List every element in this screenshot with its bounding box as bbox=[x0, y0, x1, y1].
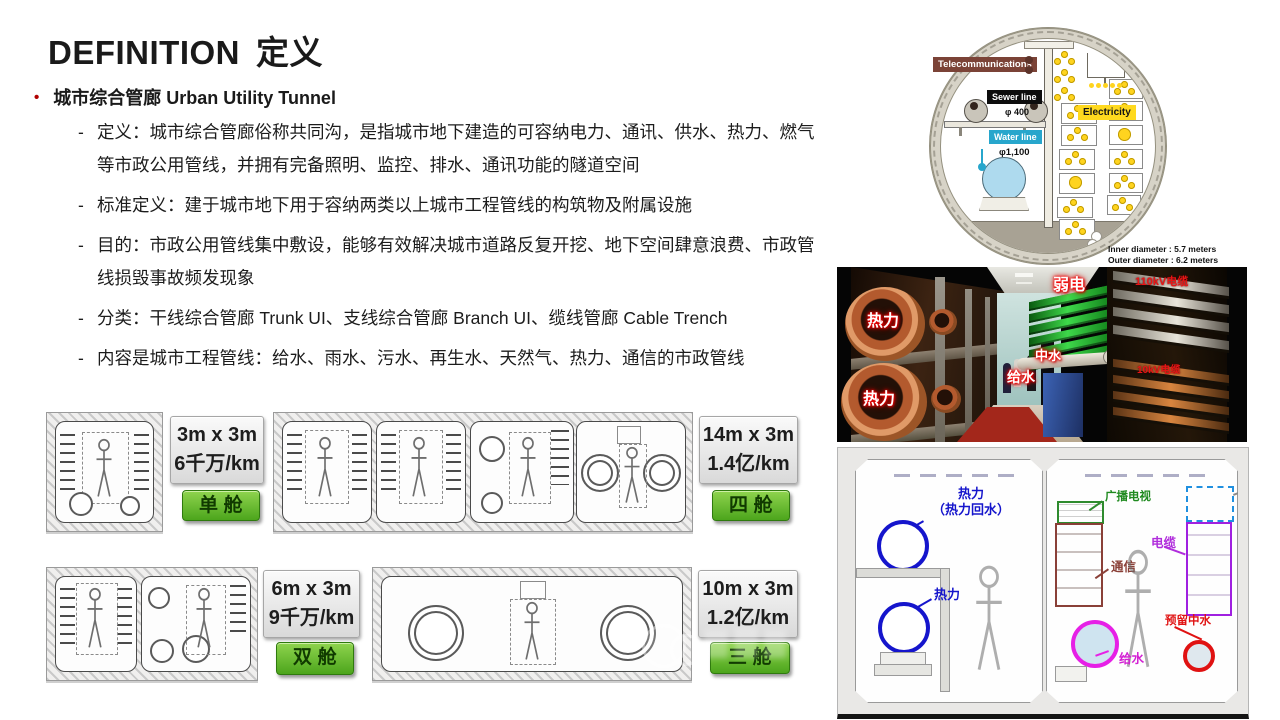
cable-bundle-icon bbox=[1077, 206, 1084, 213]
cost-card-single: 3m x 3m 6千万/km bbox=[170, 416, 264, 484]
cable-bundle-icon bbox=[1074, 127, 1081, 134]
annotation-mark bbox=[998, 474, 1014, 477]
large-pipe bbox=[600, 605, 656, 661]
heat-return-label: 热力 （热力回水） bbox=[932, 486, 1010, 518]
bullet-icon: • bbox=[34, 89, 39, 106]
cable-bundle-icon bbox=[1063, 206, 1070, 213]
tunnel-cell bbox=[576, 421, 686, 523]
cable-bundle-icon bbox=[1079, 158, 1086, 165]
cabin-cost: 9千万/km bbox=[264, 604, 359, 633]
annotation-mark bbox=[1189, 474, 1205, 477]
water-line-label: Water line bbox=[989, 130, 1042, 144]
cable-shelf bbox=[287, 434, 302, 496]
annotation-mark bbox=[894, 474, 910, 477]
cable-bead-icon bbox=[1110, 83, 1115, 88]
cable-bundle-icon bbox=[1068, 94, 1075, 101]
list-item: -目的：市政公用管线集中敷设，能够有效解决城市道路反复开挖、地下空间肆意浪费、市… bbox=[78, 229, 826, 295]
telecom-dot bbox=[1025, 66, 1033, 74]
cable-bundle-icon bbox=[1126, 204, 1133, 211]
heat-pipe-small bbox=[929, 309, 957, 335]
item-text: 标准定义：建于城市地下用于容纳两类以上城市工程管线的构筑物及附属设施 bbox=[97, 189, 692, 222]
main-bullet: • 城市综合管廊 Urban Utility Tunnel bbox=[34, 84, 336, 110]
heat-pipe-circle bbox=[878, 602, 930, 654]
item-text: 分类：干线综合管廊 Trunk UI、支线综合管廊 Branch UI、缆线管廊… bbox=[97, 302, 727, 335]
cable-bundle-icon bbox=[1121, 175, 1128, 182]
dash-marker: - bbox=[78, 302, 97, 335]
cable-bundle-icon bbox=[1070, 199, 1077, 206]
person-figure bbox=[315, 436, 335, 500]
pipe-circle bbox=[481, 492, 503, 514]
multi-utility-section-card: 广播电视 通信 电缆 给水 预留中水 bbox=[1046, 459, 1238, 703]
power-cable-rack bbox=[1186, 522, 1232, 616]
cross-section-double-cabin bbox=[46, 567, 258, 681]
person-figure bbox=[622, 446, 642, 506]
dash-marker: - bbox=[78, 229, 97, 295]
tunnel-cell bbox=[381, 576, 683, 672]
tunnel-cell bbox=[282, 421, 372, 523]
title-chinese: 定义 bbox=[256, 34, 323, 71]
large-pipe bbox=[581, 454, 619, 492]
slide: DEFINITION定义 • 城市综合管廊 Urban Utility Tunn… bbox=[0, 0, 1280, 720]
cable-shelf bbox=[352, 434, 367, 496]
item-text: 目的：市政公用管线集中敷设，能够有效解决城市道路反复开挖、地下空间肆意浪费、市政… bbox=[97, 229, 826, 295]
cost-card-triple: 10m x 3m 1.2亿/km bbox=[698, 570, 798, 638]
tunnel-cell bbox=[55, 421, 154, 523]
outer-diameter-note: Outer diameter : 6.2 meters bbox=[1108, 255, 1218, 266]
cable-bundle-icon bbox=[1121, 151, 1128, 158]
sewer-pipe-core bbox=[970, 102, 978, 110]
cable-bundle-icon bbox=[1067, 112, 1074, 119]
tunnel-cell bbox=[470, 421, 574, 523]
item-text: 定义：城市综合管廊俗称共同沟，是指城市地下建造的可容纳电力、通讯、供水、热力、燃… bbox=[97, 116, 826, 182]
gallery-column bbox=[935, 277, 945, 442]
tunnel-cell bbox=[376, 421, 466, 523]
hanger-frame bbox=[1087, 53, 1125, 78]
cable-bundle-icon bbox=[1128, 88, 1135, 95]
telecom-dot bbox=[1025, 56, 1033, 64]
cable-bundle-icon bbox=[1081, 134, 1088, 141]
cable-shelf bbox=[381, 434, 396, 496]
section-drawings-panel: 热力 （热力回水） 热力 广播电视 通信 电缆 bbox=[837, 447, 1249, 719]
annotation-mark bbox=[1163, 474, 1179, 477]
pipe-circle bbox=[120, 496, 140, 516]
cable-bundle-icon bbox=[1118, 128, 1131, 141]
empty-bundle-icon bbox=[1087, 239, 1098, 250]
cabin-type-badge-four: 四舱 bbox=[712, 490, 790, 521]
cabin-size: 10m x 3m bbox=[699, 575, 797, 604]
cable-shelf bbox=[230, 585, 246, 637]
person-figure bbox=[85, 587, 105, 651]
cabin-type-badge-triple: 三舱 bbox=[710, 642, 790, 674]
tunnel-ring-diagram: Telecommunications Sewer line φ 400 Wate… bbox=[930, 12, 1240, 268]
large-pipe bbox=[643, 454, 681, 492]
list-item: -内容是城市工程管线：给水、雨水、污水、再生水、天然气、热力、通信的市政管线 bbox=[78, 342, 826, 375]
cabin-size: 14m x 3m bbox=[700, 421, 797, 450]
main-bullet-label: 城市综合管廊 Urban Utility Tunnel bbox=[53, 88, 336, 108]
person-outline bbox=[972, 564, 1006, 676]
water-line-leader bbox=[981, 149, 983, 165]
wall-frame bbox=[856, 568, 950, 578]
telecom-rack bbox=[1055, 523, 1103, 607]
list-item: -定义：城市综合管廊俗称共同沟，是指城市地下建造的可容纳电力、通讯、供水、热力、… bbox=[78, 116, 826, 182]
cable-bundle-icon bbox=[1079, 228, 1086, 235]
cable-bundle-icon bbox=[1112, 204, 1119, 211]
pipe-circle bbox=[479, 436, 505, 462]
cabin-cost: 1.2亿/km bbox=[699, 604, 797, 633]
cable-110kv-label: 110kV电缆 bbox=[1135, 273, 1188, 289]
water-supply-label: 给水 bbox=[1007, 367, 1035, 387]
cable-bundle-icon bbox=[1114, 182, 1121, 189]
large-pipe bbox=[408, 605, 464, 661]
heat-return-line1: 热力 bbox=[932, 486, 1010, 502]
water-supply-label: 给水 bbox=[1119, 648, 1144, 667]
water-tank bbox=[1043, 373, 1083, 437]
dash-marker: - bbox=[78, 189, 97, 222]
gallery-column bbox=[965, 289, 972, 442]
reclaimed-water-label: 中水 bbox=[1035, 345, 1061, 364]
sewer-line-label: Sewer line bbox=[987, 90, 1042, 104]
tunnel-cell bbox=[55, 576, 137, 672]
pipe-circle bbox=[150, 639, 174, 663]
cabin-size: 3m x 3m bbox=[171, 421, 263, 450]
cost-card-double: 6m x 3m 9千万/km bbox=[263, 570, 360, 638]
water-supply-pipe bbox=[1071, 620, 1119, 668]
ceiling-light bbox=[1015, 273, 1033, 277]
corridor-photo: 热力 热力 弱电 中水 给水 110kV电缆 10kV电缆 bbox=[837, 267, 1247, 442]
cable-bundle-icon bbox=[1119, 197, 1126, 204]
reserved-reclaimed-label: 预留中水 bbox=[1165, 612, 1211, 628]
cable-bundle-icon bbox=[1054, 58, 1061, 65]
cable-bundle-icon bbox=[1061, 69, 1068, 76]
water-diameter-label: φ1,100 bbox=[994, 145, 1035, 160]
pipe-base bbox=[874, 664, 932, 676]
cable-bundle-icon bbox=[1121, 81, 1128, 88]
cable-bead-icon bbox=[1103, 83, 1108, 88]
cable-bundle-icon bbox=[1061, 87, 1068, 94]
divider-wall bbox=[1044, 42, 1053, 228]
telecom-label: Telecommunications bbox=[933, 57, 1037, 72]
cable-bead-icon bbox=[1089, 83, 1094, 88]
dash-marker: - bbox=[78, 116, 97, 182]
cabin-type-badge-single: 单舱 bbox=[182, 490, 260, 521]
cable-bundle-icon bbox=[1128, 182, 1135, 189]
cross-section-triple-cabin bbox=[372, 567, 692, 681]
cable-shelf bbox=[446, 434, 461, 496]
cabin-cost: 6千万/km bbox=[171, 450, 263, 479]
cable-trough bbox=[1055, 666, 1087, 682]
cable-bundle-icon bbox=[1065, 158, 1072, 165]
cable-bundle-icon bbox=[1128, 158, 1135, 165]
electricity-label: Electricity bbox=[1078, 105, 1136, 120]
leader-line bbox=[1174, 626, 1202, 640]
cable-bundle-icon bbox=[1061, 51, 1068, 58]
broadcast-tv-label: 广播电视 bbox=[1105, 488, 1151, 504]
title-english: DEFINITION bbox=[48, 34, 240, 71]
heat-label-lower: 热力 bbox=[863, 385, 895, 409]
cable-10kv-label: 10kV电缆 bbox=[1137, 361, 1180, 376]
weak-current-label: 弱电 bbox=[1053, 271, 1085, 295]
page-title: DEFINITION定义 bbox=[48, 26, 323, 74]
inner-diameter-note: Inner diameter : 5.7 meters bbox=[1108, 244, 1218, 255]
reserved-rack bbox=[1186, 486, 1234, 522]
annotation-mark bbox=[1085, 474, 1101, 477]
annotation-mark bbox=[1111, 474, 1127, 477]
heat-pipe-small bbox=[931, 385, 961, 413]
leader-line bbox=[1233, 485, 1258, 495]
pipe-circle bbox=[69, 492, 93, 516]
water-pipe-stand bbox=[979, 197, 1029, 211]
cable-bundle-icon bbox=[1114, 88, 1121, 95]
heat-label-upper: 热力 bbox=[867, 307, 899, 331]
water-pipe bbox=[982, 157, 1026, 201]
heat-section-card: 热力 （热力回水） 热力 bbox=[855, 459, 1043, 703]
person-figure bbox=[522, 601, 542, 663]
annotation-mark bbox=[1137, 474, 1153, 477]
vent-box bbox=[520, 581, 546, 599]
cross-section-single-cabin bbox=[46, 412, 163, 532]
item-text: 内容是城市工程管线：给水、雨水、污水、再生水、天然气、热力、通信的市政管线 bbox=[97, 342, 745, 375]
cable-bundle-icon bbox=[1069, 176, 1082, 189]
cable-shelf bbox=[134, 434, 149, 496]
person-figure bbox=[518, 436, 538, 500]
reclaimed-pipe bbox=[1183, 640, 1215, 672]
heat-label: 热力 bbox=[934, 584, 960, 603]
annotation-mark bbox=[920, 474, 936, 477]
platform-leg bbox=[959, 127, 962, 136]
dash-marker: - bbox=[78, 342, 97, 375]
annotation-mark bbox=[972, 474, 988, 477]
cabin-size: 6m x 3m bbox=[264, 575, 359, 604]
cable-bundle-icon bbox=[1067, 134, 1074, 141]
cost-card-four: 14m x 3m 1.4亿/km bbox=[699, 416, 798, 484]
cable-bundle-icon bbox=[1114, 158, 1121, 165]
cable-shelf bbox=[117, 588, 132, 646]
top-beam bbox=[1024, 41, 1074, 49]
cable-bead-icon bbox=[1096, 83, 1101, 88]
annotation-mark bbox=[946, 474, 962, 477]
definition-list: -定义：城市综合管廊俗称共同沟，是指城市地下建造的可容纳电力、通讯、供水、热力、… bbox=[78, 116, 826, 382]
cable-bundle-icon bbox=[1068, 58, 1075, 65]
cabin-type-badge-double: 双舱 bbox=[276, 642, 354, 675]
cable-shelf bbox=[60, 588, 75, 646]
heat-return-pipe bbox=[877, 520, 929, 572]
tunnel-cell bbox=[141, 576, 251, 672]
sewer-diameter-label: φ 400 bbox=[1000, 105, 1034, 119]
cable-bundle-icon bbox=[1072, 221, 1079, 228]
pipe-circle bbox=[148, 587, 170, 609]
cross-section-four-cabin bbox=[273, 412, 693, 532]
vent-box bbox=[617, 426, 641, 444]
cabin-cost: 1.4亿/km bbox=[700, 450, 797, 479]
cable-shelf bbox=[60, 434, 75, 496]
diameter-notes: Inner diameter : 5.7 meters Outer diamet… bbox=[1108, 244, 1218, 265]
list-item: -标准定义：建于城市地下用于容纳两类以上城市工程管线的构筑物及附属设施 bbox=[78, 189, 826, 222]
person-figure bbox=[94, 438, 114, 500]
cable-bundle-icon bbox=[1068, 76, 1075, 83]
cable-bundle-icon bbox=[1054, 76, 1061, 83]
cable-bead-icon bbox=[1117, 83, 1122, 88]
cable-bundle-icon bbox=[1072, 151, 1079, 158]
cable-bundle-icon bbox=[1065, 228, 1072, 235]
list-item: -分类：干线综合管廊 Trunk UI、支线综合管廊 Branch UI、缆线管… bbox=[78, 302, 826, 335]
cable-shelf bbox=[551, 430, 569, 485]
heat-return-line2: （热力回水） bbox=[932, 502, 1010, 518]
person-figure bbox=[409, 436, 429, 500]
person-figure bbox=[194, 587, 214, 651]
cable-bundle-icon bbox=[1054, 94, 1061, 101]
